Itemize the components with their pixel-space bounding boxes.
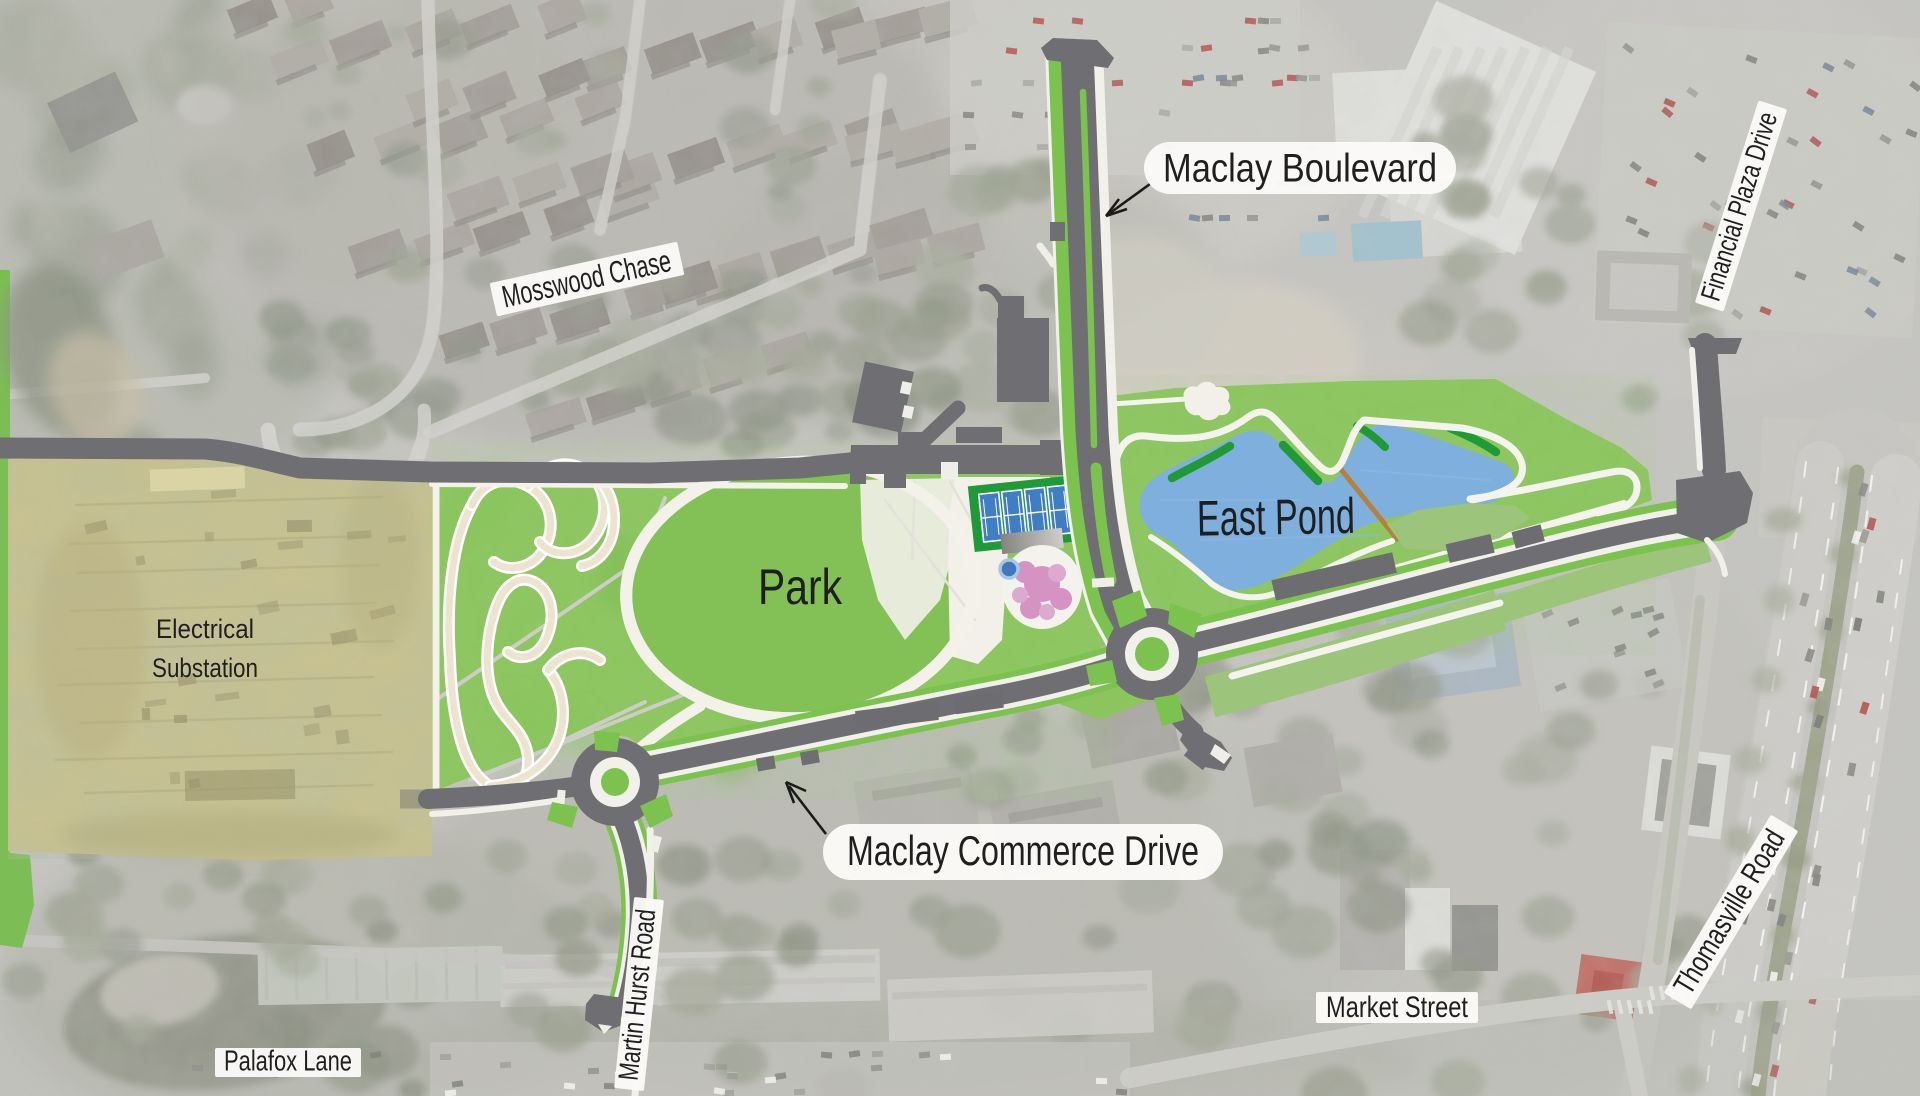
svg-text:Park: Park	[758, 559, 843, 615]
svg-text:Market Street: Market Street	[1326, 991, 1469, 1024]
svg-text:Maclay Commerce Drive: Maclay Commerce Drive	[847, 827, 1199, 874]
svg-text:East Pond: East Pond	[1196, 488, 1355, 547]
svg-text:Palafox Lane: Palafox Lane	[224, 1046, 352, 1078]
svg-text:Substation: Substation	[152, 653, 258, 683]
svg-text:Maclay Boulevard: Maclay Boulevard	[1163, 147, 1437, 191]
svg-text:Electrical: Electrical	[156, 614, 254, 644]
